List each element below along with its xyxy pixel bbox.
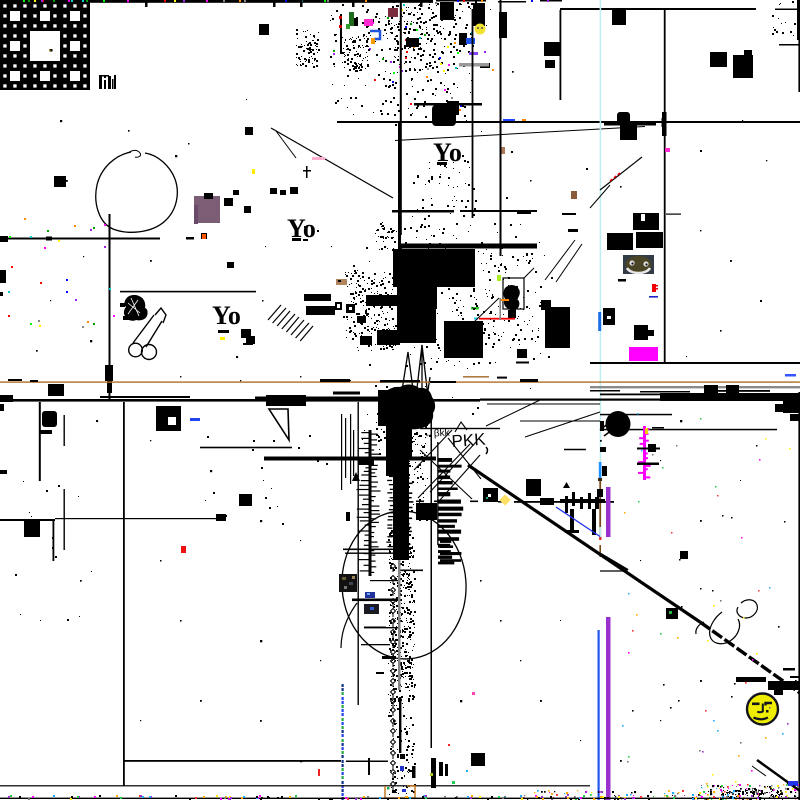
svg-text:←βkk: ←βkk	[424, 428, 451, 440]
svg-text:PKK: PKK	[451, 430, 487, 451]
svg-text:Yo: Yo	[212, 301, 241, 330]
svg-text:Yo: Yo	[287, 214, 316, 243]
